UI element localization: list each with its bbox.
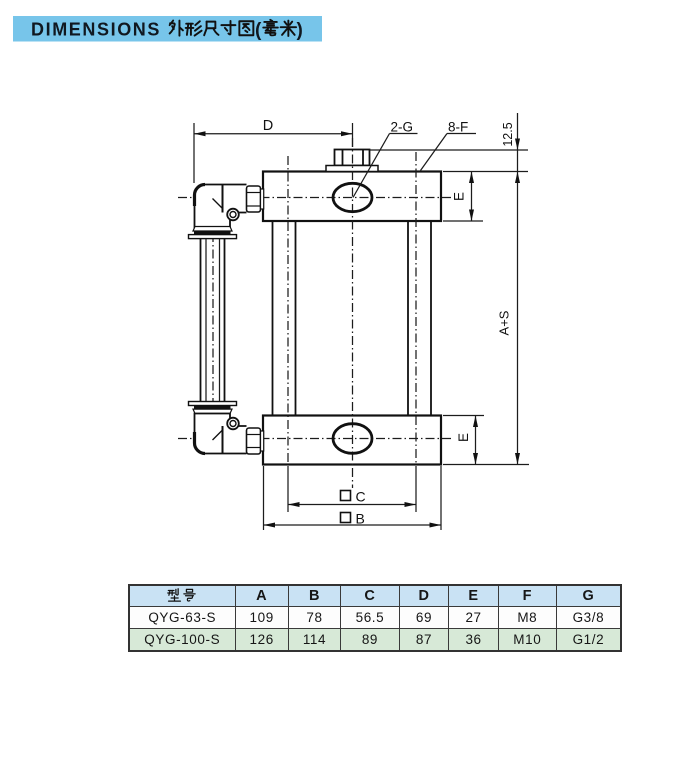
svg-text:2-G: 2-G (391, 120, 414, 135)
svg-text:E: E (452, 192, 467, 201)
svg-text:D: D (263, 118, 273, 134)
svg-text:A+S: A+S (496, 310, 511, 335)
svg-text:12.5: 12.5 (501, 122, 515, 146)
svg-text:8-F: 8-F (448, 120, 468, 135)
svg-text:): ) (297, 20, 303, 41)
svg-text:B: B (356, 511, 365, 527)
svg-text:E: E (456, 433, 471, 442)
svg-text:(: ( (255, 20, 262, 41)
svg-text:DIMENSIONS: DIMENSIONS (31, 20, 161, 40)
svg-text:C: C (356, 489, 366, 505)
